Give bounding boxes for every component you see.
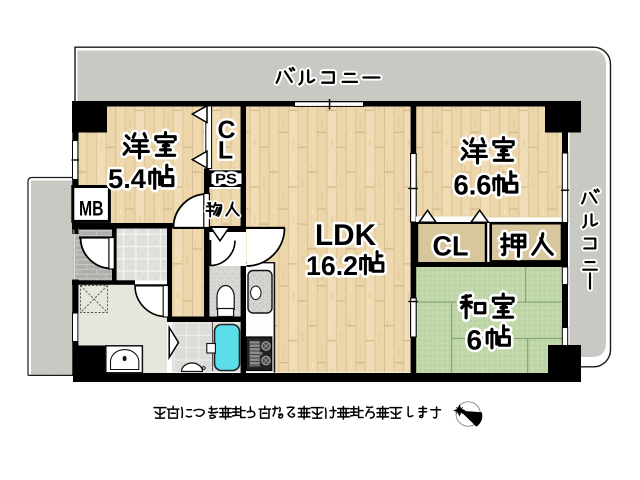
- svg-text:6.6: 6.6: [454, 170, 492, 201]
- svg-text:CL: CL: [433, 231, 469, 262]
- svg-text:L: L: [218, 137, 233, 165]
- svg-text:PS: PS: [215, 171, 237, 187]
- svg-text:LDK: LDK: [315, 219, 376, 252]
- svg-text:MB: MB: [79, 198, 104, 221]
- svg-text:6: 6: [467, 325, 483, 356]
- svg-text:5.4: 5.4: [108, 164, 146, 194]
- svg-text:16.2: 16.2: [306, 251, 358, 281]
